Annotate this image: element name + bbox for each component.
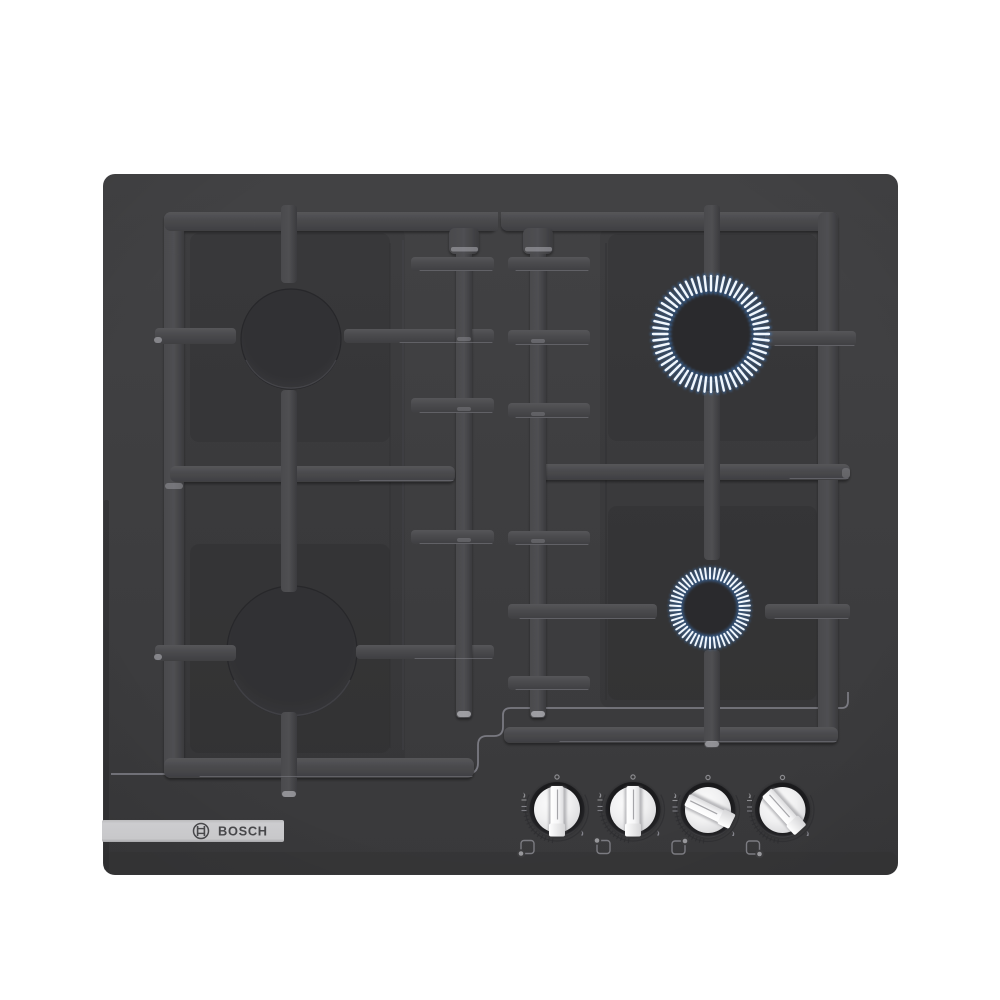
svg-text:BOSCH: BOSCH [218,824,268,839]
